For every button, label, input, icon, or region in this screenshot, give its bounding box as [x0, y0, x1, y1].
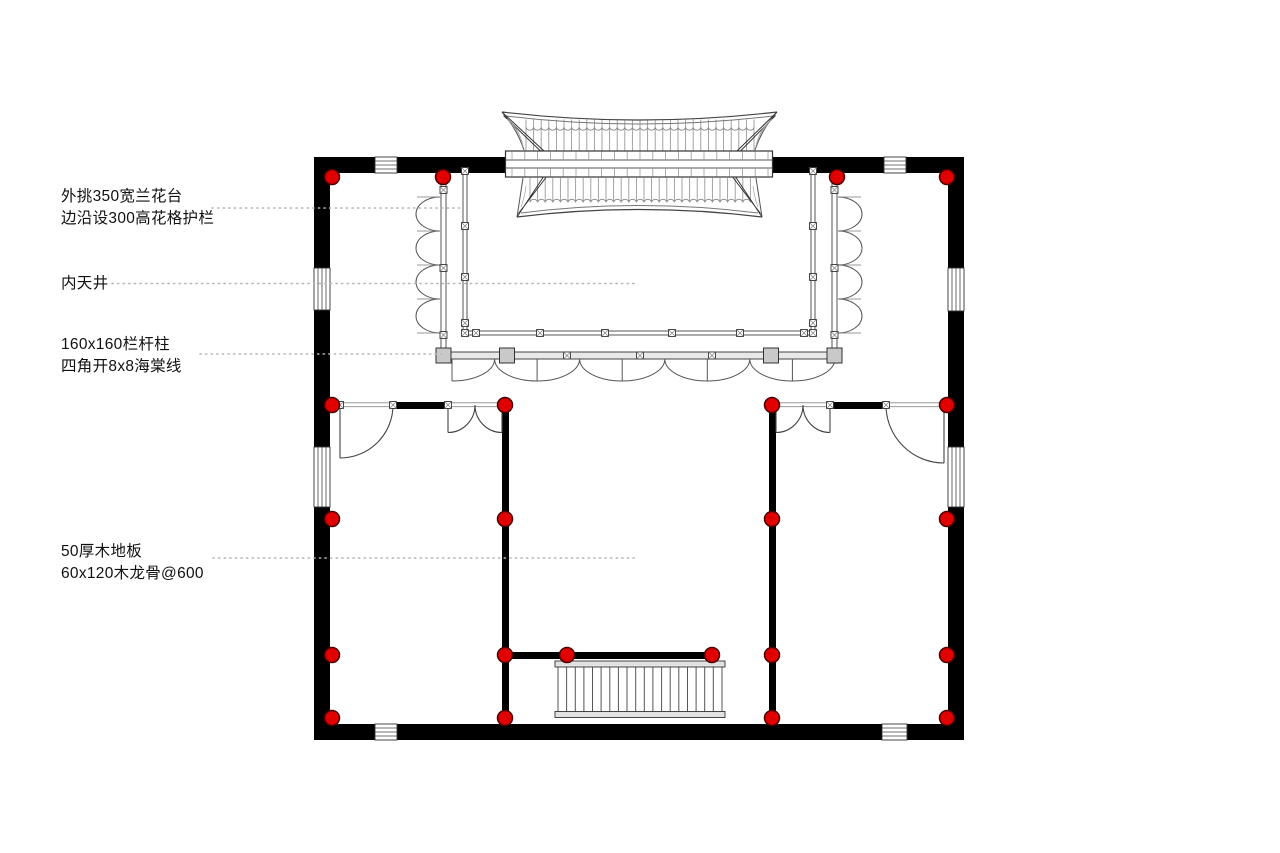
door-right-single — [886, 405, 944, 463]
interior-wall-right — [769, 402, 776, 724]
annotation-railing-post-line2: 四角开8x8海棠线 — [61, 356, 182, 378]
column-marker — [498, 648, 513, 663]
stair-rail-bottom — [555, 712, 725, 718]
column-marker — [705, 648, 720, 663]
annotation-planter-line1: 外挑350宽兰花台 — [61, 186, 214, 208]
column-marker — [560, 648, 575, 663]
column-marker — [325, 648, 340, 663]
column-marker — [498, 711, 513, 726]
floor-plan: 外挑350宽兰花台 边沿设300高花格护栏 内天井 160x160栏杆柱 四角开… — [0, 0, 1280, 853]
stair-wall — [502, 652, 712, 659]
column-marker — [325, 170, 340, 185]
window-mullions — [318, 161, 960, 736]
column-marker — [940, 398, 955, 413]
column-marker — [436, 170, 451, 185]
annotation-courtyard: 内天井 — [61, 273, 108, 295]
column-marker — [830, 170, 845, 185]
column-marker — [940, 711, 955, 726]
door-left-double — [448, 405, 502, 433]
interior-wall-left — [502, 402, 509, 724]
column-marker — [325, 711, 340, 726]
annotation-planter-line2: 边沿设300高花格护栏 — [61, 208, 214, 230]
roof — [502, 112, 777, 217]
column-marker — [765, 512, 780, 527]
roof-tile-ends-bottom — [530, 199, 750, 202]
roof-tiles-bottom — [530, 178, 750, 203]
doors — [340, 405, 944, 463]
column-marker — [940, 170, 955, 185]
column-marker — [325, 512, 340, 527]
planter-panels-right — [838, 197, 862, 333]
annotation-wood-floor-line2: 60x120木龙骨@600 — [61, 563, 204, 585]
stair-rail-top — [555, 661, 725, 667]
annotation-planter: 外挑350宽兰花台 边沿设300高花格护栏 — [61, 186, 214, 229]
column-marker — [325, 398, 340, 413]
column-marker — [765, 398, 780, 413]
roof-ridge-band — [506, 151, 773, 177]
planter-panels-left — [416, 197, 440, 333]
plan-drawing — [0, 0, 1280, 853]
staircase — [555, 661, 725, 718]
stair-treads — [558, 667, 722, 712]
door-right-double — [776, 405, 830, 433]
leader-lines — [112, 208, 637, 558]
column-marker — [765, 648, 780, 663]
column-marker — [940, 648, 955, 663]
annotation-railing-post-line1: 160x160栏杆柱 — [61, 334, 182, 356]
annotation-railing-post: 160x160栏杆柱 四角开8x8海棠线 — [61, 334, 182, 377]
annotation-courtyard-line1: 内天井 — [61, 273, 108, 295]
column-marker — [498, 512, 513, 527]
annotation-wood-floor: 50厚木地板 60x120木龙骨@600 — [61, 541, 204, 584]
interior-walls — [330, 402, 948, 724]
column-marker — [765, 711, 780, 726]
railing-posts — [440, 168, 838, 360]
annotation-wood-floor-line1: 50厚木地板 — [61, 541, 204, 563]
door-left-single — [340, 405, 393, 458]
column-marker — [498, 398, 513, 413]
column-marker — [940, 512, 955, 527]
